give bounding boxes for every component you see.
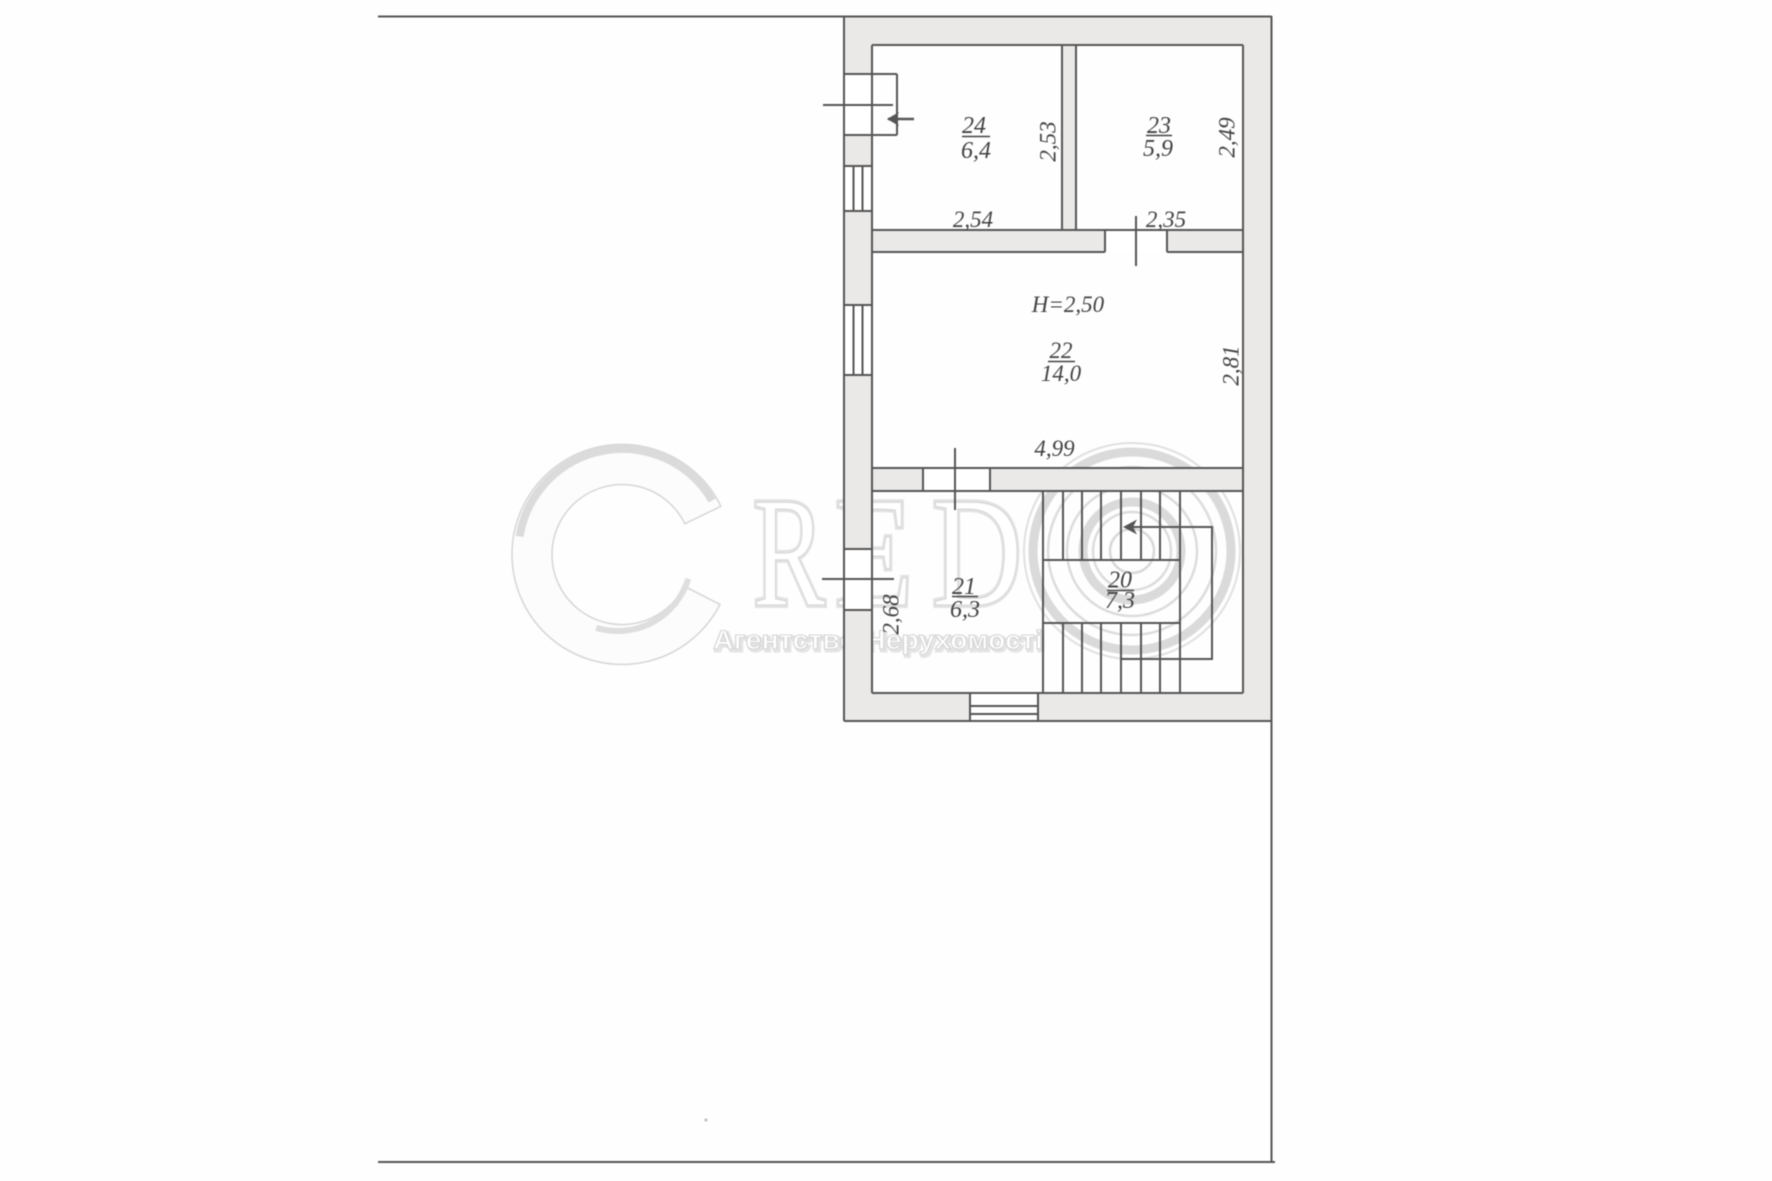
svg-text:H=2,50: H=2,50	[1031, 292, 1105, 317]
svg-text:2,68: 2,68	[879, 594, 904, 635]
svg-text:5,9: 5,9	[1143, 136, 1173, 162]
svg-text:24: 24	[962, 113, 986, 139]
svg-text:7,3: 7,3	[1105, 588, 1135, 614]
svg-text:2,81: 2,81	[1219, 345, 1244, 385]
svg-text:2,53: 2,53	[1036, 121, 1061, 161]
svg-text:6,3: 6,3	[950, 597, 980, 623]
svg-text:2,49: 2,49	[1215, 117, 1240, 158]
svg-text:22: 22	[1050, 338, 1073, 363]
svg-text:14,0: 14,0	[1041, 361, 1082, 386]
svg-text:R: R	[753, 465, 825, 639]
svg-text:2,54: 2,54	[953, 207, 993, 232]
svg-text:6,4: 6,4	[961, 138, 991, 164]
svg-text:4,99: 4,99	[1034, 436, 1075, 461]
svg-text:2,35: 2,35	[1146, 207, 1186, 232]
